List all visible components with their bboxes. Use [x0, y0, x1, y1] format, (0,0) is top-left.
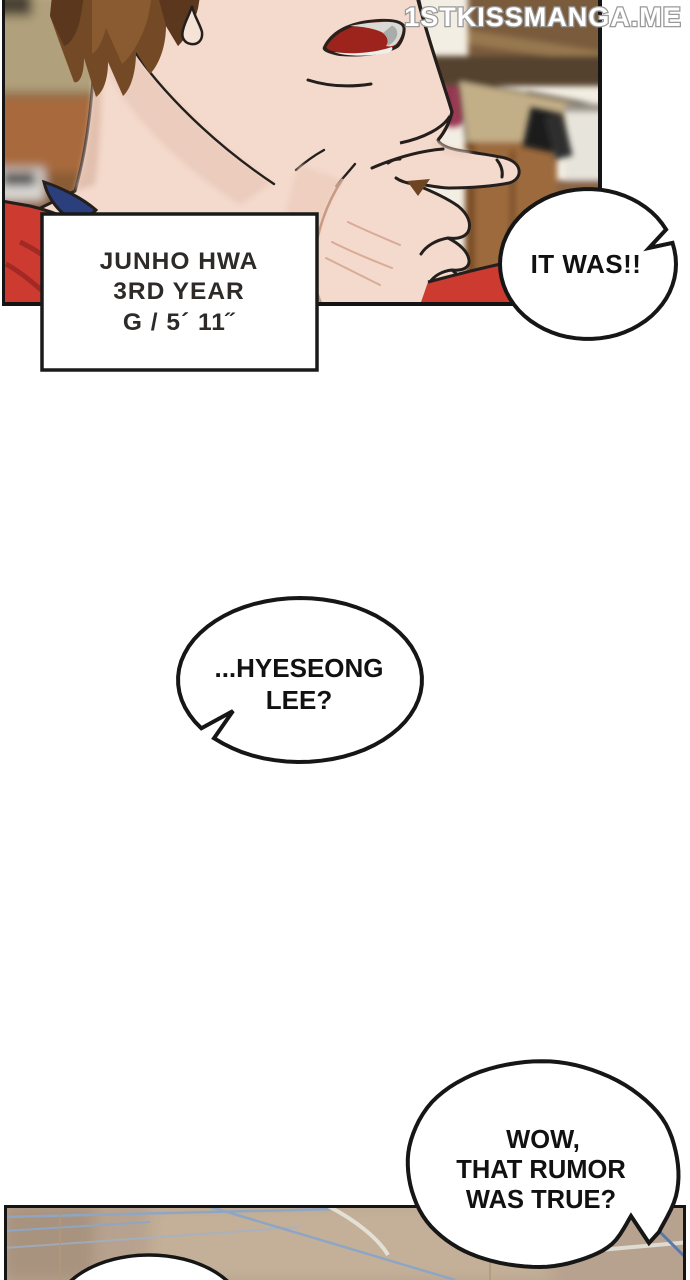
svg-text:...HYESEONG: ...HYESEONG [214, 653, 383, 683]
svg-text:WAS TRUE?: WAS TRUE? [466, 1186, 616, 1214]
svg-text:JUNHO HWA: JUNHO HWA [100, 248, 259, 275]
svg-text:THAT RUMOR: THAT RUMOR [456, 1156, 626, 1184]
svg-text:IT WAS!!: IT WAS!! [531, 249, 642, 279]
svg-text:WOW,: WOW, [506, 1126, 580, 1154]
svg-text:LEE?: LEE? [266, 685, 332, 715]
svg-text:1STKISSMANGA.ME: 1STKISSMANGA.ME [404, 2, 682, 32]
svg-text:G / 5´ 11˝: G / 5´ 11˝ [123, 309, 236, 336]
svg-text:3RD YEAR: 3RD YEAR [113, 278, 244, 305]
